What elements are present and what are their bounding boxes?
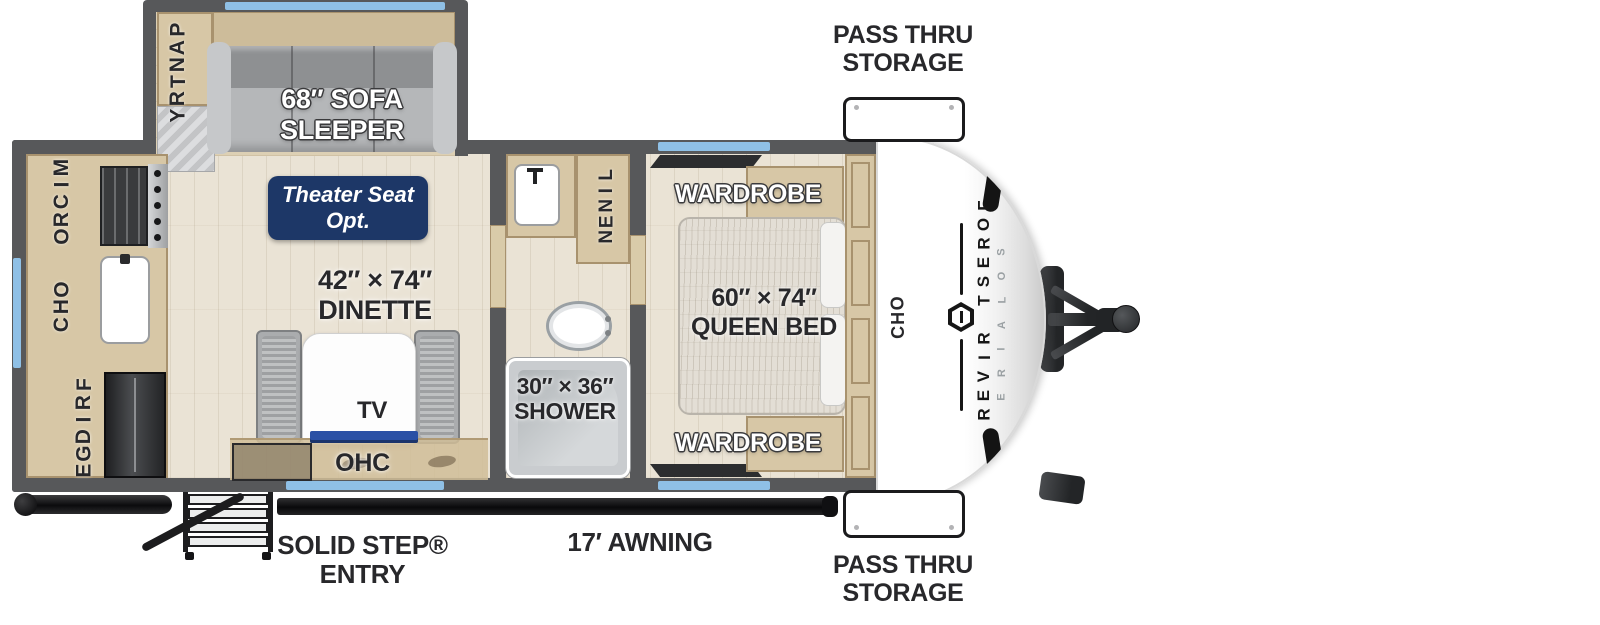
tv-unit xyxy=(310,431,418,443)
step-foot xyxy=(185,552,194,560)
pass-thru-storage-box-bottom xyxy=(843,490,965,538)
brand-model-text: SOLAIRE xyxy=(998,240,1020,409)
dinette-label: 42″ × 74″ DINETTE xyxy=(295,266,455,325)
sofa-label: 68″ SOFA SLEEPER xyxy=(252,84,432,146)
stabilizer-jack xyxy=(1038,471,1085,505)
bath-door-left xyxy=(490,225,506,308)
brand-rule xyxy=(960,223,963,295)
sofa-label-line1: 68″ SOFA xyxy=(252,84,432,115)
refrigerator xyxy=(104,372,166,478)
kitchen-faucet xyxy=(120,254,130,264)
awning-rail xyxy=(277,498,830,515)
cabinet-door xyxy=(851,162,870,228)
bedroom-window-top xyxy=(658,142,770,151)
solid-step-line2: ENTRY xyxy=(260,560,465,589)
awning-label: 17′ AWNING xyxy=(545,528,735,557)
fridge-label: FRIDGE xyxy=(66,376,98,480)
step-tread xyxy=(188,522,268,533)
hitch-knob xyxy=(1112,305,1140,333)
brand-emblem-column xyxy=(948,223,974,411)
awning-rail-endcap xyxy=(822,496,838,517)
screw-dot xyxy=(854,105,859,110)
cabinet-door xyxy=(851,240,870,306)
dinette-line2: DINETTE xyxy=(295,296,455,326)
dinette-line1: 42″ × 74″ xyxy=(295,266,455,296)
range-knobs xyxy=(154,170,161,177)
rear-bumper-endcap xyxy=(14,493,37,516)
pantry-label: PANTRY xyxy=(158,16,194,130)
micro-label: MICRO xyxy=(44,156,76,248)
forest-river-logo-icon xyxy=(948,302,974,332)
ohc-living-label: OHC xyxy=(320,450,405,478)
brand-rule xyxy=(960,339,963,411)
bath-sink xyxy=(514,164,560,226)
toilet xyxy=(546,301,612,351)
linen-label: LINEN xyxy=(590,158,620,254)
rear-bumper xyxy=(20,495,172,514)
dinette-bench-right xyxy=(414,330,460,444)
fridge-door-seam xyxy=(134,378,136,472)
queen-line1: 60″ × 74″ xyxy=(676,284,852,313)
shower-line2: SHOWER xyxy=(490,399,640,424)
dinette-bench-left xyxy=(256,330,302,444)
toilet-hinge xyxy=(605,330,611,336)
brand-name-text: FOREST RIVER xyxy=(972,196,998,424)
theater-line2: Opt. xyxy=(326,208,370,234)
shower-line1: 30″ × 36″ xyxy=(490,374,640,399)
pass-thru-bottom-line1: PASS THRU xyxy=(808,552,998,580)
bench-cushion xyxy=(420,336,454,438)
pass-thru-storage-label-bottom: PASS THRU STORAGE xyxy=(808,552,998,607)
dinette-window xyxy=(286,481,444,490)
screw-dot xyxy=(949,525,954,530)
solid-step-line1: SOLID STEP® xyxy=(260,531,465,560)
sofa-armrest-right xyxy=(433,42,457,154)
tv-label: TV xyxy=(340,398,404,424)
pass-thru-storage-box-top xyxy=(843,97,965,142)
queen-bed-label: 60″ × 74″ QUEEN BED xyxy=(676,284,852,342)
shower-label: 30″ × 36″ SHOWER xyxy=(490,374,640,425)
floorplan-canvas: PASS THRU STORAGE PASS THRU STORAGE SOLI… xyxy=(0,0,1600,625)
solid-step-entry-label: SOLID STEP® ENTRY xyxy=(260,531,465,588)
step-tread xyxy=(188,536,268,547)
counter-cutout xyxy=(427,454,456,469)
entry-step-well xyxy=(232,443,312,481)
pass-thru-top-line1: PASS THRU xyxy=(808,22,998,50)
wardrobe-top-label: WARDROBE xyxy=(658,181,838,209)
dinette-table xyxy=(302,333,416,445)
kitchen-sink xyxy=(100,256,150,344)
screw-dot xyxy=(949,105,954,110)
ohc-bedroom-label: OHC xyxy=(882,282,910,354)
range-cooktop xyxy=(100,166,148,246)
queen-line2: QUEEN BED xyxy=(676,313,852,342)
cabinet-door xyxy=(851,318,870,384)
theater-line1: Theater Seat xyxy=(282,182,414,208)
toilet-hinge xyxy=(605,316,611,322)
bench-cushion xyxy=(262,336,296,438)
screw-dot xyxy=(854,525,859,530)
ohc-kitchen-label: OHC xyxy=(44,264,76,350)
bedroom-window-bottom xyxy=(658,481,770,490)
sofa-armrest-left xyxy=(207,42,231,154)
bath-wall-left-upper xyxy=(490,154,506,225)
bedroom-door xyxy=(630,235,646,305)
theater-seat-option-badge: Theater Seat Opt. xyxy=(268,176,428,240)
bath-wall-right-upper xyxy=(630,154,646,235)
cabinet-door xyxy=(851,396,870,470)
pass-thru-storage-label-top: PASS THRU STORAGE xyxy=(808,22,998,77)
sofa-label-line2: SLEEPER xyxy=(252,115,432,146)
rear-window xyxy=(13,258,21,368)
wardrobe-bottom-label: WARDROBE xyxy=(658,430,838,458)
slide-window xyxy=(225,2,445,10)
pass-thru-top-line2: STORAGE xyxy=(808,50,998,78)
pass-thru-bottom-line2: STORAGE xyxy=(808,580,998,608)
bath-faucet-handle xyxy=(527,168,543,172)
